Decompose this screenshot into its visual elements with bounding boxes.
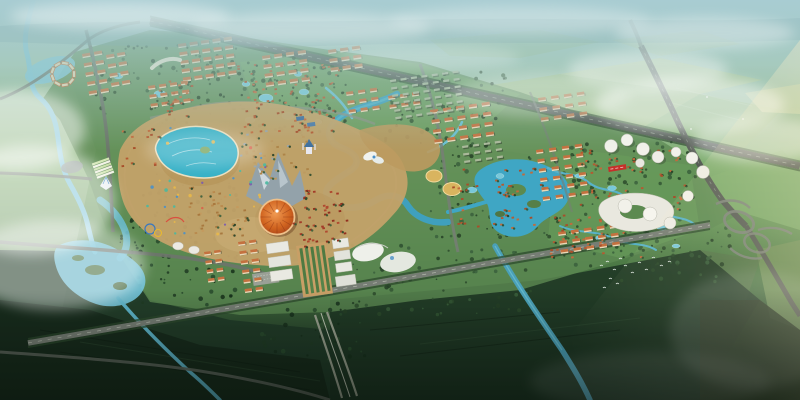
white-dome-2: [189, 246, 200, 254]
gold-dome-hall-1: [426, 170, 442, 182]
scene-canvas: Aerial perspective rendering of a master…: [0, 0, 800, 400]
bottom-vignette: [0, 290, 800, 400]
aerial-render: Aerial perspective rendering of a master…: [0, 0, 800, 400]
white-dome-1: [173, 242, 184, 250]
